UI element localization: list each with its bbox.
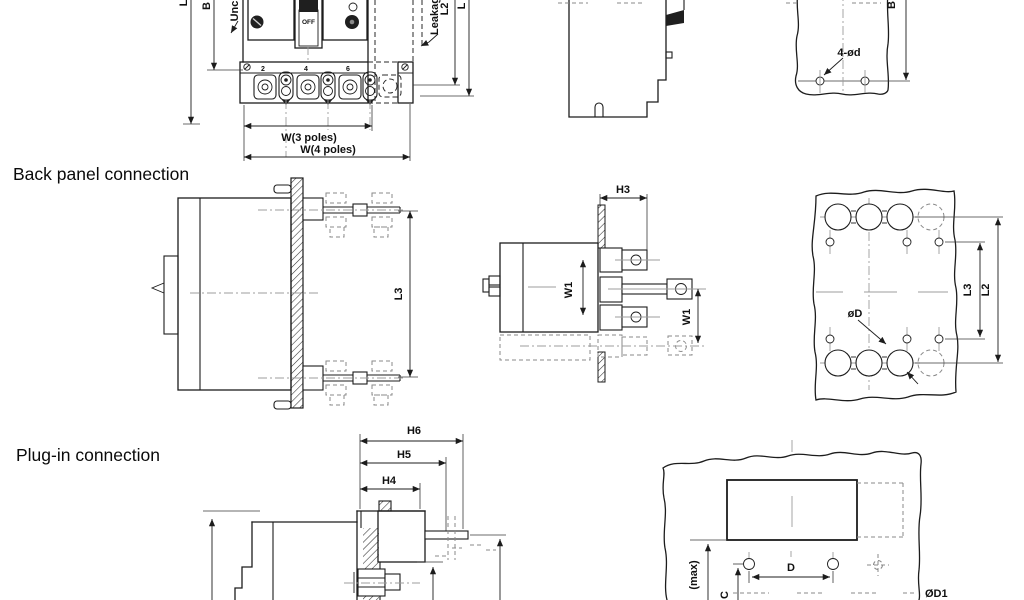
dim-label-l2-top: L2 [439,3,451,16]
dim-label-w1-outer: W1 [681,309,693,326]
section-heading-plug-in: Plug-in connection [16,445,160,465]
breaker-handle-icon [666,10,684,26]
dim-label-l3-side: L3 [393,288,405,301]
dim-label-h3: H3 [616,184,630,196]
blade-terminal [425,531,468,539]
callout-label-unc: Unc [229,1,241,22]
handle-mark-icon [152,283,164,293]
dim-label-od1: ØD1 [925,588,948,600]
position-target-icon [867,554,889,576]
plug-in-side-view: H6 H5 H4 [203,425,506,600]
terminal-number-4: 4 [304,66,308,73]
dim-label-h4: H4 [382,475,397,487]
drawing-canvas: OFF 2 4 6 [0,0,1024,600]
fourth-pole-dashed [500,335,692,360]
dim-label-w1-inner: W1 [563,282,575,299]
dim-label-h6: H6 [407,425,421,437]
dim-label-max: (max) [688,560,700,590]
switch-off-label: OFF [302,19,315,26]
side-view-top [558,0,684,117]
dim-label-od: øD [848,308,863,320]
dim-label-b-left: B [201,2,213,10]
technical-drawing: OFF 2 4 6 [0,0,1024,600]
section-heading-back-panel: Back panel connection [13,164,189,184]
dim-label-b-right: B [886,1,898,9]
dim-label-w4poles: W(4 poles) [300,144,356,156]
dim-label-4od: 4-ød [837,47,860,59]
dim-label-h5: H5 [397,449,411,461]
dim-label-c: C [719,591,731,599]
mounting-panel-drawing: 4-ød B [786,0,910,95]
plug-in-panel-cutout-view: D (max) C ØD1 [663,440,948,600]
terminal-number-2: 2 [261,66,265,73]
dim-label-l-top: L [456,2,468,9]
terminal-number-6: 6 [346,66,350,73]
back-panel-side-view: L3 [152,178,418,409]
dim-label-d: D [787,562,795,574]
back-panel-cutout-view: øD L3 L2 [812,189,1003,400]
bolt-head [385,574,400,590]
dim-label-l3-panel: L3 [962,284,974,297]
dim-label-l2-panel: L2 [980,284,992,297]
dim-label-l1: L1 [178,0,190,6]
test-button-icon [349,3,357,11]
nut [358,569,385,596]
toggle-handle [299,0,318,12]
back-panel-top-view: H3 W1 W1 [483,184,706,382]
dim-label-w3poles: W(3 poles) [281,132,337,144]
small-mounting-holes [826,230,943,351]
front-view-dimensions: L1 B Unc Leakag L2 L W(3 poles) W(4 pole… [178,0,474,161]
fourth-pole-cutout-dashed [857,483,903,537]
